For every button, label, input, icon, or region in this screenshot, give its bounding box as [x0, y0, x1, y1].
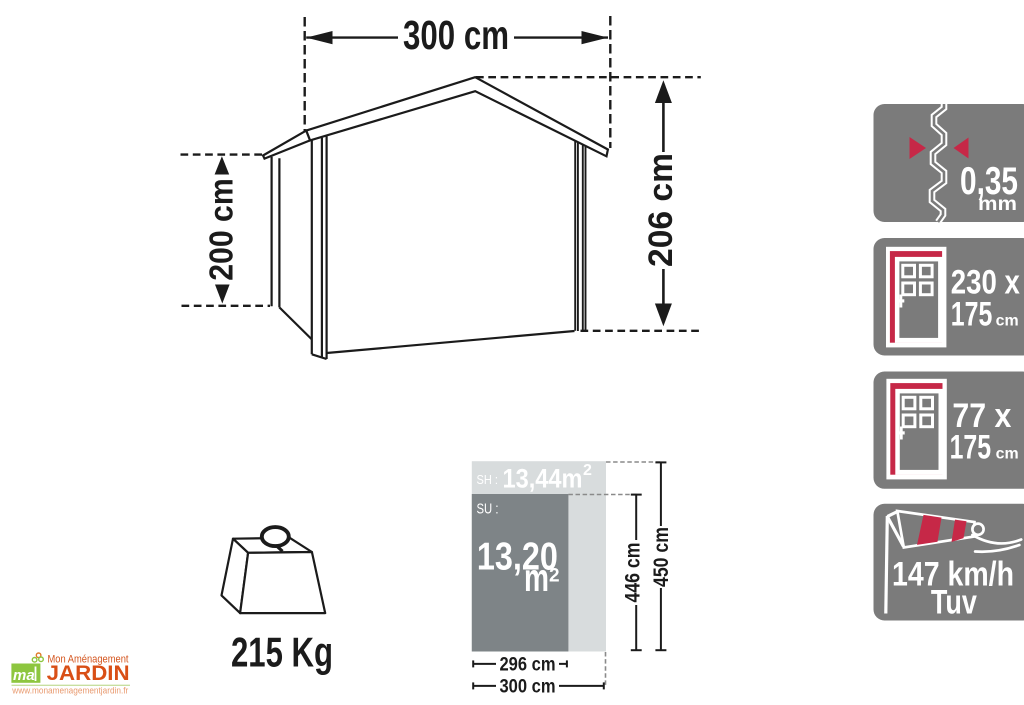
svg-text:175: 175 [951, 295, 993, 333]
svg-text:mm: mm [978, 194, 1017, 215]
svg-text:JARDIN: JARDIN [47, 662, 130, 685]
svg-text:SU :: SU : [477, 501, 499, 518]
svg-text:13,44m: 13,44m [503, 464, 583, 494]
svg-text:175: 175 [950, 428, 992, 466]
svg-text:200 cm: 200 cm [203, 178, 240, 281]
svg-text:SH :: SH : [477, 472, 499, 487]
svg-text:2: 2 [549, 566, 560, 587]
svg-text:450 cm: 450 cm [650, 527, 673, 587]
svg-text:446 cm: 446 cm [622, 543, 645, 603]
svg-text:cm: cm [996, 445, 1019, 462]
svg-text:296 cm: 296 cm [500, 654, 556, 676]
svg-text:300 cm: 300 cm [403, 12, 509, 58]
svg-text:206 cm: 206 cm [642, 153, 680, 267]
svg-text:cm: cm [996, 312, 1019, 329]
svg-text:215 Kg: 215 Kg [231, 629, 333, 676]
svg-text:300 cm: 300 cm [500, 676, 556, 698]
svg-text:Tuv: Tuv [931, 584, 977, 622]
svg-text:2: 2 [583, 462, 592, 479]
svg-text:m: m [524, 557, 549, 600]
svg-text:ma: ma [13, 667, 35, 684]
svg-text:www.monamenagementjardin.fr: www.monamenagementjardin.fr [11, 685, 128, 695]
